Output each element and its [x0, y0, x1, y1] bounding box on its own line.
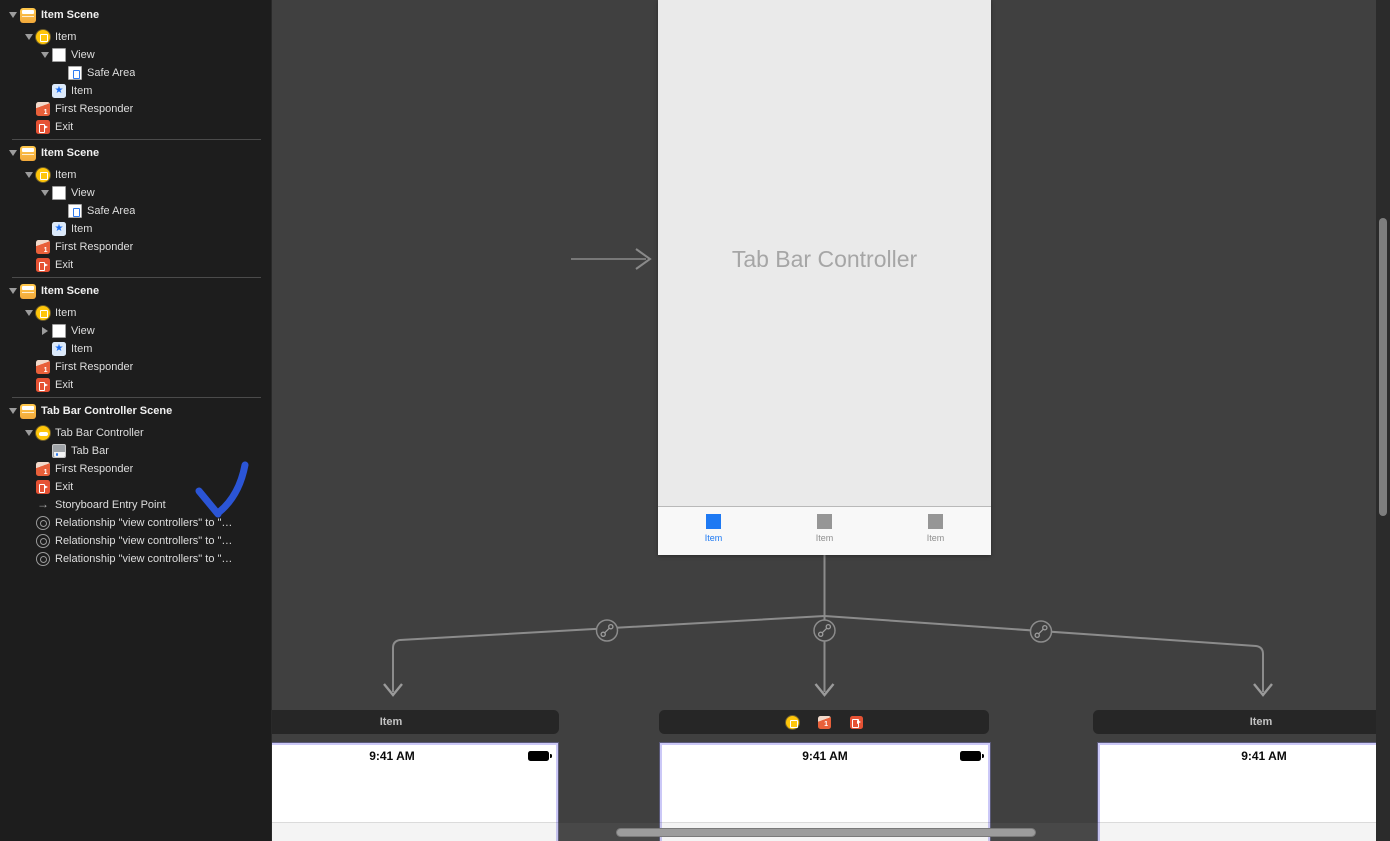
scene-dock-center[interactable]: [659, 710, 989, 734]
status-bar: 9:41 AM: [660, 743, 990, 763]
scene-dock-title: Item: [1250, 716, 1273, 728]
outline-row-tab-bar-item[interactable]: Item: [0, 82, 271, 100]
safe-area-icon: [68, 204, 82, 218]
scene-icon: [20, 8, 36, 23]
storyboard-canvas[interactable]: Tab Bar Controller Item Item Item Item 9…: [271, 0, 1390, 841]
first-responder-cube-icon: [36, 462, 50, 476]
first-responder-cube-icon[interactable]: [818, 716, 831, 729]
scene-group-item-2: Item Scene Item View Safe Area Item Firs…: [0, 144, 271, 274]
scene-icon: [20, 284, 36, 299]
outline-row-tab-bar-controller[interactable]: Tab Bar Controller: [0, 424, 271, 442]
outline-row-view[interactable]: View: [0, 184, 271, 202]
entry-point-arrow-icon: [36, 498, 50, 512]
view-controller-icon: [36, 30, 50, 44]
outline-label: Item: [71, 343, 92, 355]
status-bar: 9:41 AM: [271, 743, 558, 763]
horizontal-scrollbar-track[interactable]: [272, 822, 1390, 841]
scene-group-item-1: Item Scene Item View Safe Area Item Firs…: [0, 6, 271, 136]
relationship-icon: [36, 552, 50, 566]
outline-row-item-scene[interactable]: Item Scene: [0, 282, 271, 300]
view-icon: [52, 48, 66, 62]
tab-item-image-icon: [928, 514, 943, 529]
outline-label: Item: [71, 85, 92, 97]
tab-item-image-icon: [817, 514, 832, 529]
tab-item-image-icon: [706, 514, 721, 529]
disclosure-triangle-icon[interactable]: [9, 12, 17, 18]
battery-icon: [960, 751, 981, 761]
tab-item-2[interactable]: Item: [769, 507, 880, 555]
tab-bar[interactable]: Item Item Item: [658, 506, 991, 555]
outline-row-exit[interactable]: Exit: [0, 118, 271, 136]
first-responder-cube-icon: [36, 102, 50, 116]
tab-bar-item-star-icon: [52, 84, 66, 98]
view-controller-icon: [36, 306, 50, 320]
outline-label: Tab Bar Controller: [55, 427, 144, 439]
scene-dock-left[interactable]: Item: [271, 710, 559, 734]
outline-label: Tab Bar: [71, 445, 109, 457]
relationship-icon: [36, 534, 50, 548]
relationship-badge-icon: [597, 620, 1052, 642]
status-time: 9:41 AM: [1241, 749, 1287, 763]
horizontal-scrollbar-thumb[interactable]: [616, 828, 1036, 837]
scene-dock-right[interactable]: Item: [1093, 710, 1390, 734]
battery-icon: [528, 751, 549, 761]
safe-area-icon: [68, 66, 82, 80]
outline-row-safe-area[interactable]: Safe Area: [0, 202, 271, 220]
disclosure-triangle-icon[interactable]: [25, 172, 33, 178]
status-time: 9:41 AM: [802, 749, 848, 763]
scene-dock-title: Item: [380, 716, 403, 728]
outline-label: Relationship "view controllers" to "…: [55, 553, 232, 565]
outline-row-tab-bar-item[interactable]: Item: [0, 220, 271, 238]
exit-icon: [36, 258, 50, 272]
tab-bar-item-star-icon: [52, 222, 66, 236]
outline-row-view-controller[interactable]: Item: [0, 304, 271, 322]
outline-row-view-controller[interactable]: Item: [0, 166, 271, 184]
tab-bar-controller-icon: [36, 426, 50, 440]
disclosure-triangle-collapsed-icon[interactable]: [42, 327, 48, 335]
outline-row-first-responder[interactable]: First Responder: [0, 100, 271, 118]
outline-row-first-responder[interactable]: First Responder: [0, 238, 271, 256]
outline-row-view-controller[interactable]: Item: [0, 28, 271, 46]
outline-label: First Responder: [55, 241, 133, 253]
outline-row-item-scene[interactable]: Item Scene: [0, 144, 271, 162]
scene-title: Item Scene: [41, 147, 99, 159]
tab-bar-item-star-icon: [52, 342, 66, 356]
scene-divider: [12, 397, 261, 398]
view-icon: [52, 324, 66, 338]
view-controller-icon[interactable]: [786, 716, 799, 729]
tab-item-label: Item: [816, 533, 834, 543]
outline-label: Exit: [55, 121, 73, 133]
tab-bar-controller-view[interactable]: Tab Bar Controller Item Item Item: [658, 0, 991, 555]
outline-label: Item: [71, 223, 92, 235]
scene-divider: [12, 277, 261, 278]
outline-label: Exit: [55, 481, 73, 493]
outline-label: Safe Area: [87, 205, 135, 217]
outline-label: Exit: [55, 259, 73, 271]
disclosure-triangle-icon[interactable]: [25, 430, 33, 436]
outline-label: Storyboard Entry Point: [55, 499, 166, 511]
tab-item-label: Item: [927, 533, 945, 543]
outline-label: View: [71, 325, 95, 337]
tab-bar-controller-title: Tab Bar Controller: [658, 246, 991, 273]
status-bar: 9:41 AM: [1098, 743, 1390, 763]
disclosure-triangle-icon[interactable]: [41, 190, 49, 196]
outline-label: Item: [55, 307, 76, 319]
outline-label: Item: [55, 169, 76, 181]
outline-label: Safe Area: [87, 67, 135, 79]
outline-label: Item: [55, 31, 76, 43]
outline-row-tab-bar-controller-scene[interactable]: Tab Bar Controller Scene: [0, 402, 271, 420]
scene-title: Item Scene: [41, 285, 99, 297]
outline-row-exit[interactable]: Exit: [0, 256, 271, 274]
tab-bar-icon: [52, 444, 66, 458]
tab-item-3[interactable]: Item: [880, 507, 991, 555]
disclosure-triangle-icon[interactable]: [25, 310, 33, 316]
exit-icon: [36, 120, 50, 134]
disclosure-triangle-icon[interactable]: [9, 288, 17, 294]
scene-icon: [20, 146, 36, 161]
exit-icon: [36, 378, 50, 392]
outline-row-item-scene[interactable]: Item Scene: [0, 6, 271, 24]
exit-icon: [36, 480, 50, 494]
scene-icon: [20, 404, 36, 419]
outline-row-exit[interactable]: Exit: [0, 376, 271, 394]
tab-item-label: Item: [705, 533, 723, 543]
outline-row-view[interactable]: View: [0, 322, 271, 340]
outline-row-safe-area[interactable]: Safe Area: [0, 64, 271, 82]
disclosure-triangle-icon[interactable]: [25, 34, 33, 40]
status-time: 9:41 AM: [369, 749, 415, 763]
scene-group-item-3: Item Scene Item View Item First Responde…: [0, 282, 271, 394]
outline-label: First Responder: [55, 361, 133, 373]
outline-row-view[interactable]: View: [0, 46, 271, 64]
outline-label: View: [71, 187, 95, 199]
outline-row-tab-bar-item[interactable]: Item: [0, 340, 271, 358]
disclosure-triangle-icon[interactable]: [9, 150, 17, 156]
first-responder-cube-icon: [36, 240, 50, 254]
outline-label: View: [71, 49, 95, 61]
view-controller-icon: [36, 168, 50, 182]
outline-row-first-responder[interactable]: First Responder: [0, 358, 271, 376]
first-responder-cube-icon: [36, 360, 50, 374]
scene-title: Item Scene: [41, 9, 99, 21]
hand-drawn-arrow-annotation: [190, 448, 270, 540]
exit-icon[interactable]: [850, 716, 863, 729]
disclosure-triangle-icon[interactable]: [41, 52, 49, 58]
outline-label: Exit: [55, 379, 73, 391]
vertical-scrollbar-thumb[interactable]: [1379, 218, 1387, 516]
outline-label: First Responder: [55, 463, 133, 475]
document-outline-sidebar: Item Scene Item View Safe Area Item Firs…: [0, 0, 271, 841]
disclosure-triangle-icon[interactable]: [9, 408, 17, 414]
view-icon: [52, 186, 66, 200]
tab-item-1[interactable]: Item: [658, 507, 769, 555]
outline-row-relationship-3[interactable]: Relationship "view controllers" to "…: [0, 550, 271, 568]
outline-label: First Responder: [55, 103, 133, 115]
scene-divider: [12, 139, 261, 140]
relationship-icon: [36, 516, 50, 530]
scene-title: Tab Bar Controller Scene: [41, 405, 172, 417]
vertical-scrollbar-track[interactable]: [1376, 0, 1390, 841]
